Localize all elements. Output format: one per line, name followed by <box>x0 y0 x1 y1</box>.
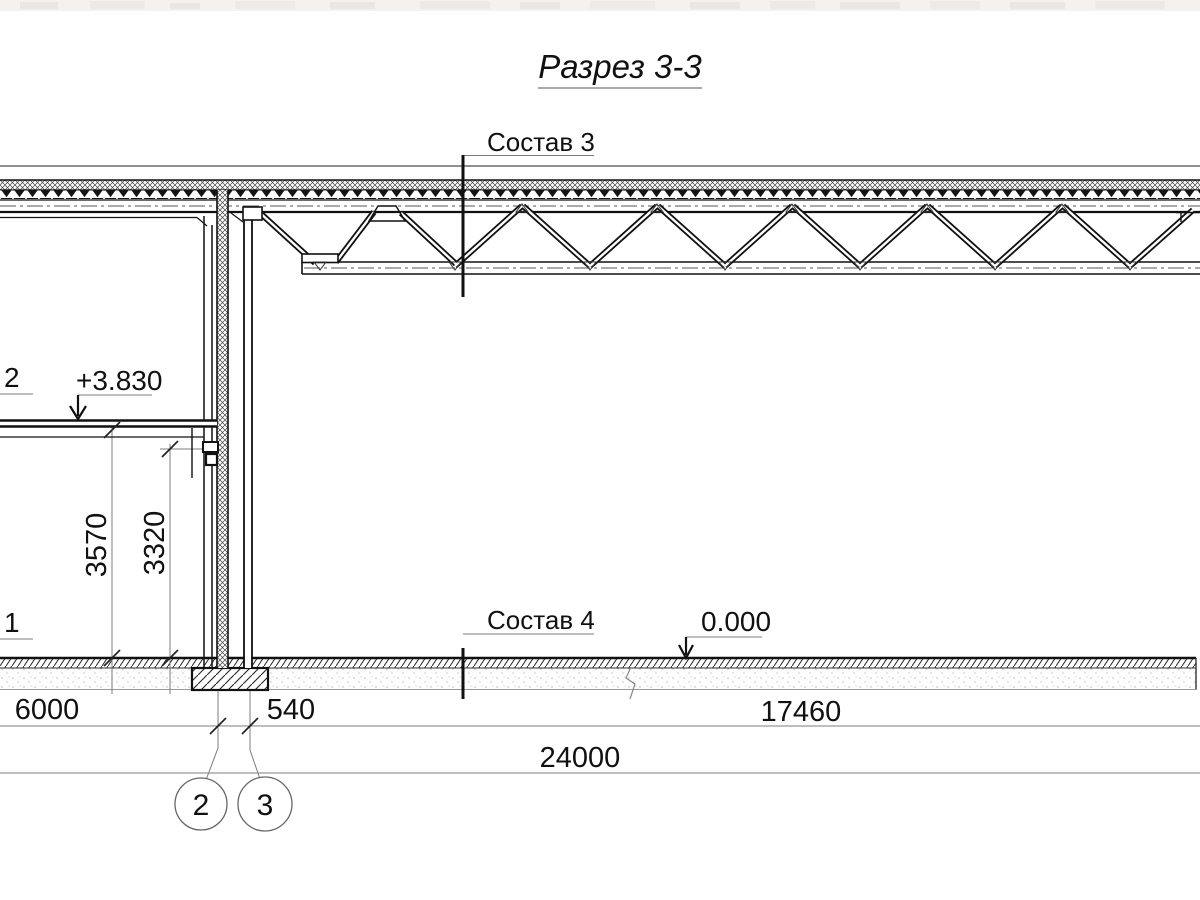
right-haunch <box>231 213 243 222</box>
drawing-canvas: Разрез 3-3 Состав 3 Состав 4 +3.830 0.00… <box>0 0 1200 900</box>
elev-arrow-0000 <box>679 637 693 658</box>
column-core <box>245 220 251 668</box>
elevation-3830: +3.830 <box>76 365 162 396</box>
elev-arrow-3830 <box>70 395 86 419</box>
roof-insulation-hatch <box>0 180 1200 190</box>
dim-6000: 6000 <box>15 694 80 726</box>
roof-assembly <box>0 166 1200 226</box>
truss-diagonals <box>259 206 1193 266</box>
note-number-1: 1 <box>4 607 20 638</box>
dim-3570: 3570 <box>81 513 113 578</box>
floor-screed-hatch <box>0 659 1196 668</box>
foundation-block <box>192 668 268 690</box>
dim-540: 540 <box>267 694 315 726</box>
axis-label-2: 2 <box>193 789 210 822</box>
floor-base-stipple <box>0 669 1197 690</box>
sostav3-label: Состав 3 <box>487 127 595 157</box>
column-cap-plate <box>243 207 262 220</box>
dim-3320: 3320 <box>139 511 171 576</box>
axis-label-3: 3 <box>257 789 274 822</box>
elevation-0000: 0.000 <box>701 606 771 637</box>
axis2-leader <box>206 691 218 780</box>
dim-17460: 17460 <box>761 696 842 728</box>
bottom-gusset-seat <box>302 254 338 263</box>
axis3-leader <box>250 691 260 779</box>
wall-assembly <box>204 190 252 668</box>
truss-node-marks <box>314 204 1136 270</box>
dim-24000: 24000 <box>540 742 621 774</box>
beam-seat-lower <box>206 454 217 465</box>
sostav4-label: Состав 4 <box>487 605 595 635</box>
beam-seat-upper <box>203 442 218 452</box>
left-haunch <box>197 218 207 227</box>
wall-panel-hatch <box>217 190 228 668</box>
drawing-title: Разрез 3-3 <box>538 48 702 85</box>
roof-deck-ribs <box>0 191 1200 200</box>
ground-floor-slab <box>0 658 1197 699</box>
section-drawing: Разрез 3-3 Состав 3 Состав 4 +3.830 0.00… <box>0 0 1200 900</box>
scan-artifact-band <box>0 0 1200 11</box>
note-number-2: 2 <box>4 362 20 393</box>
roof-truss <box>243 204 1200 274</box>
